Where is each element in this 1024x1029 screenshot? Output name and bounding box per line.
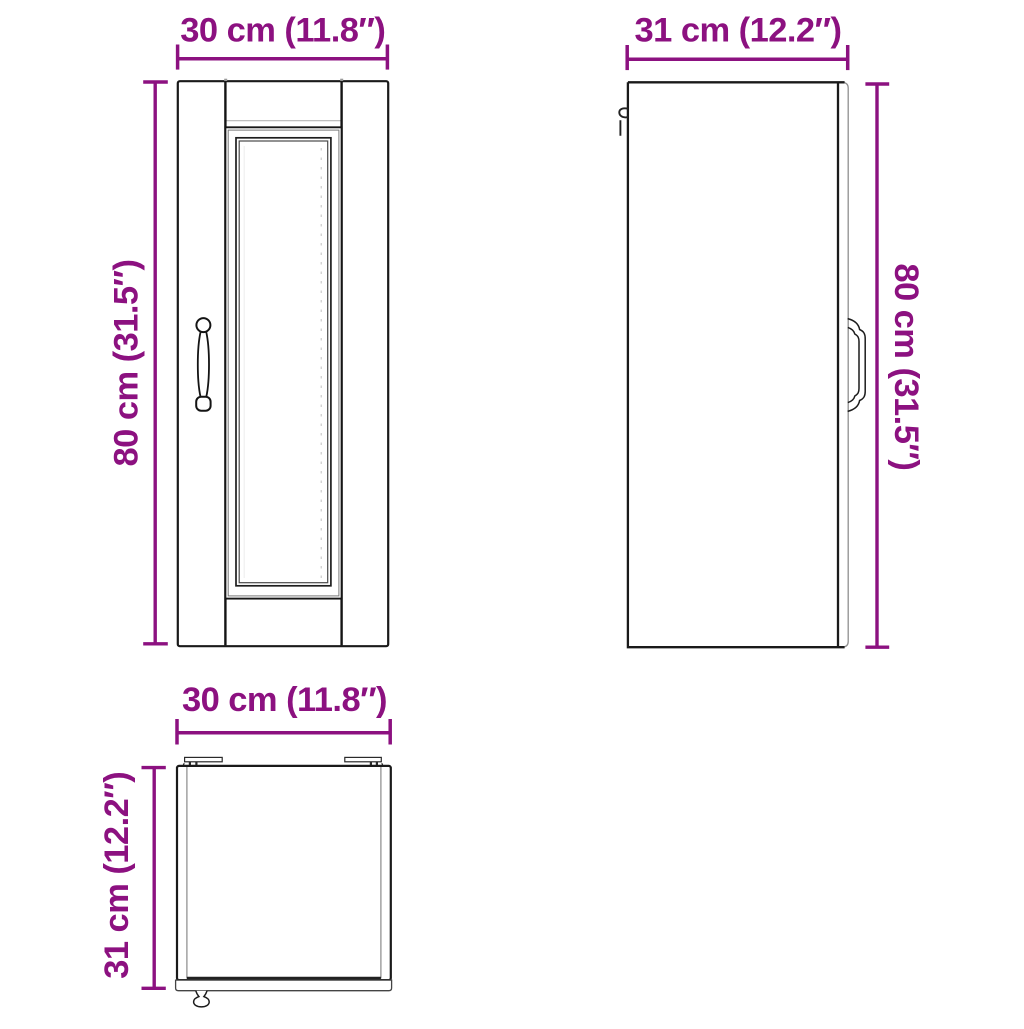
svg-text:30 cm (11.8″): 30 cm (11.8″) xyxy=(180,11,385,49)
svg-text:31 cm (12.2″): 31 cm (12.2″) xyxy=(98,772,136,979)
svg-text:80 cm (31.5″): 80 cm (31.5″) xyxy=(887,263,925,470)
svg-text:31 cm (12.2″): 31 cm (12.2″) xyxy=(635,11,842,49)
svg-text:30 cm (11.8″): 30 cm (11.8″) xyxy=(182,681,387,719)
svg-text:80 cm (31.5″): 80 cm (31.5″) xyxy=(107,260,145,467)
